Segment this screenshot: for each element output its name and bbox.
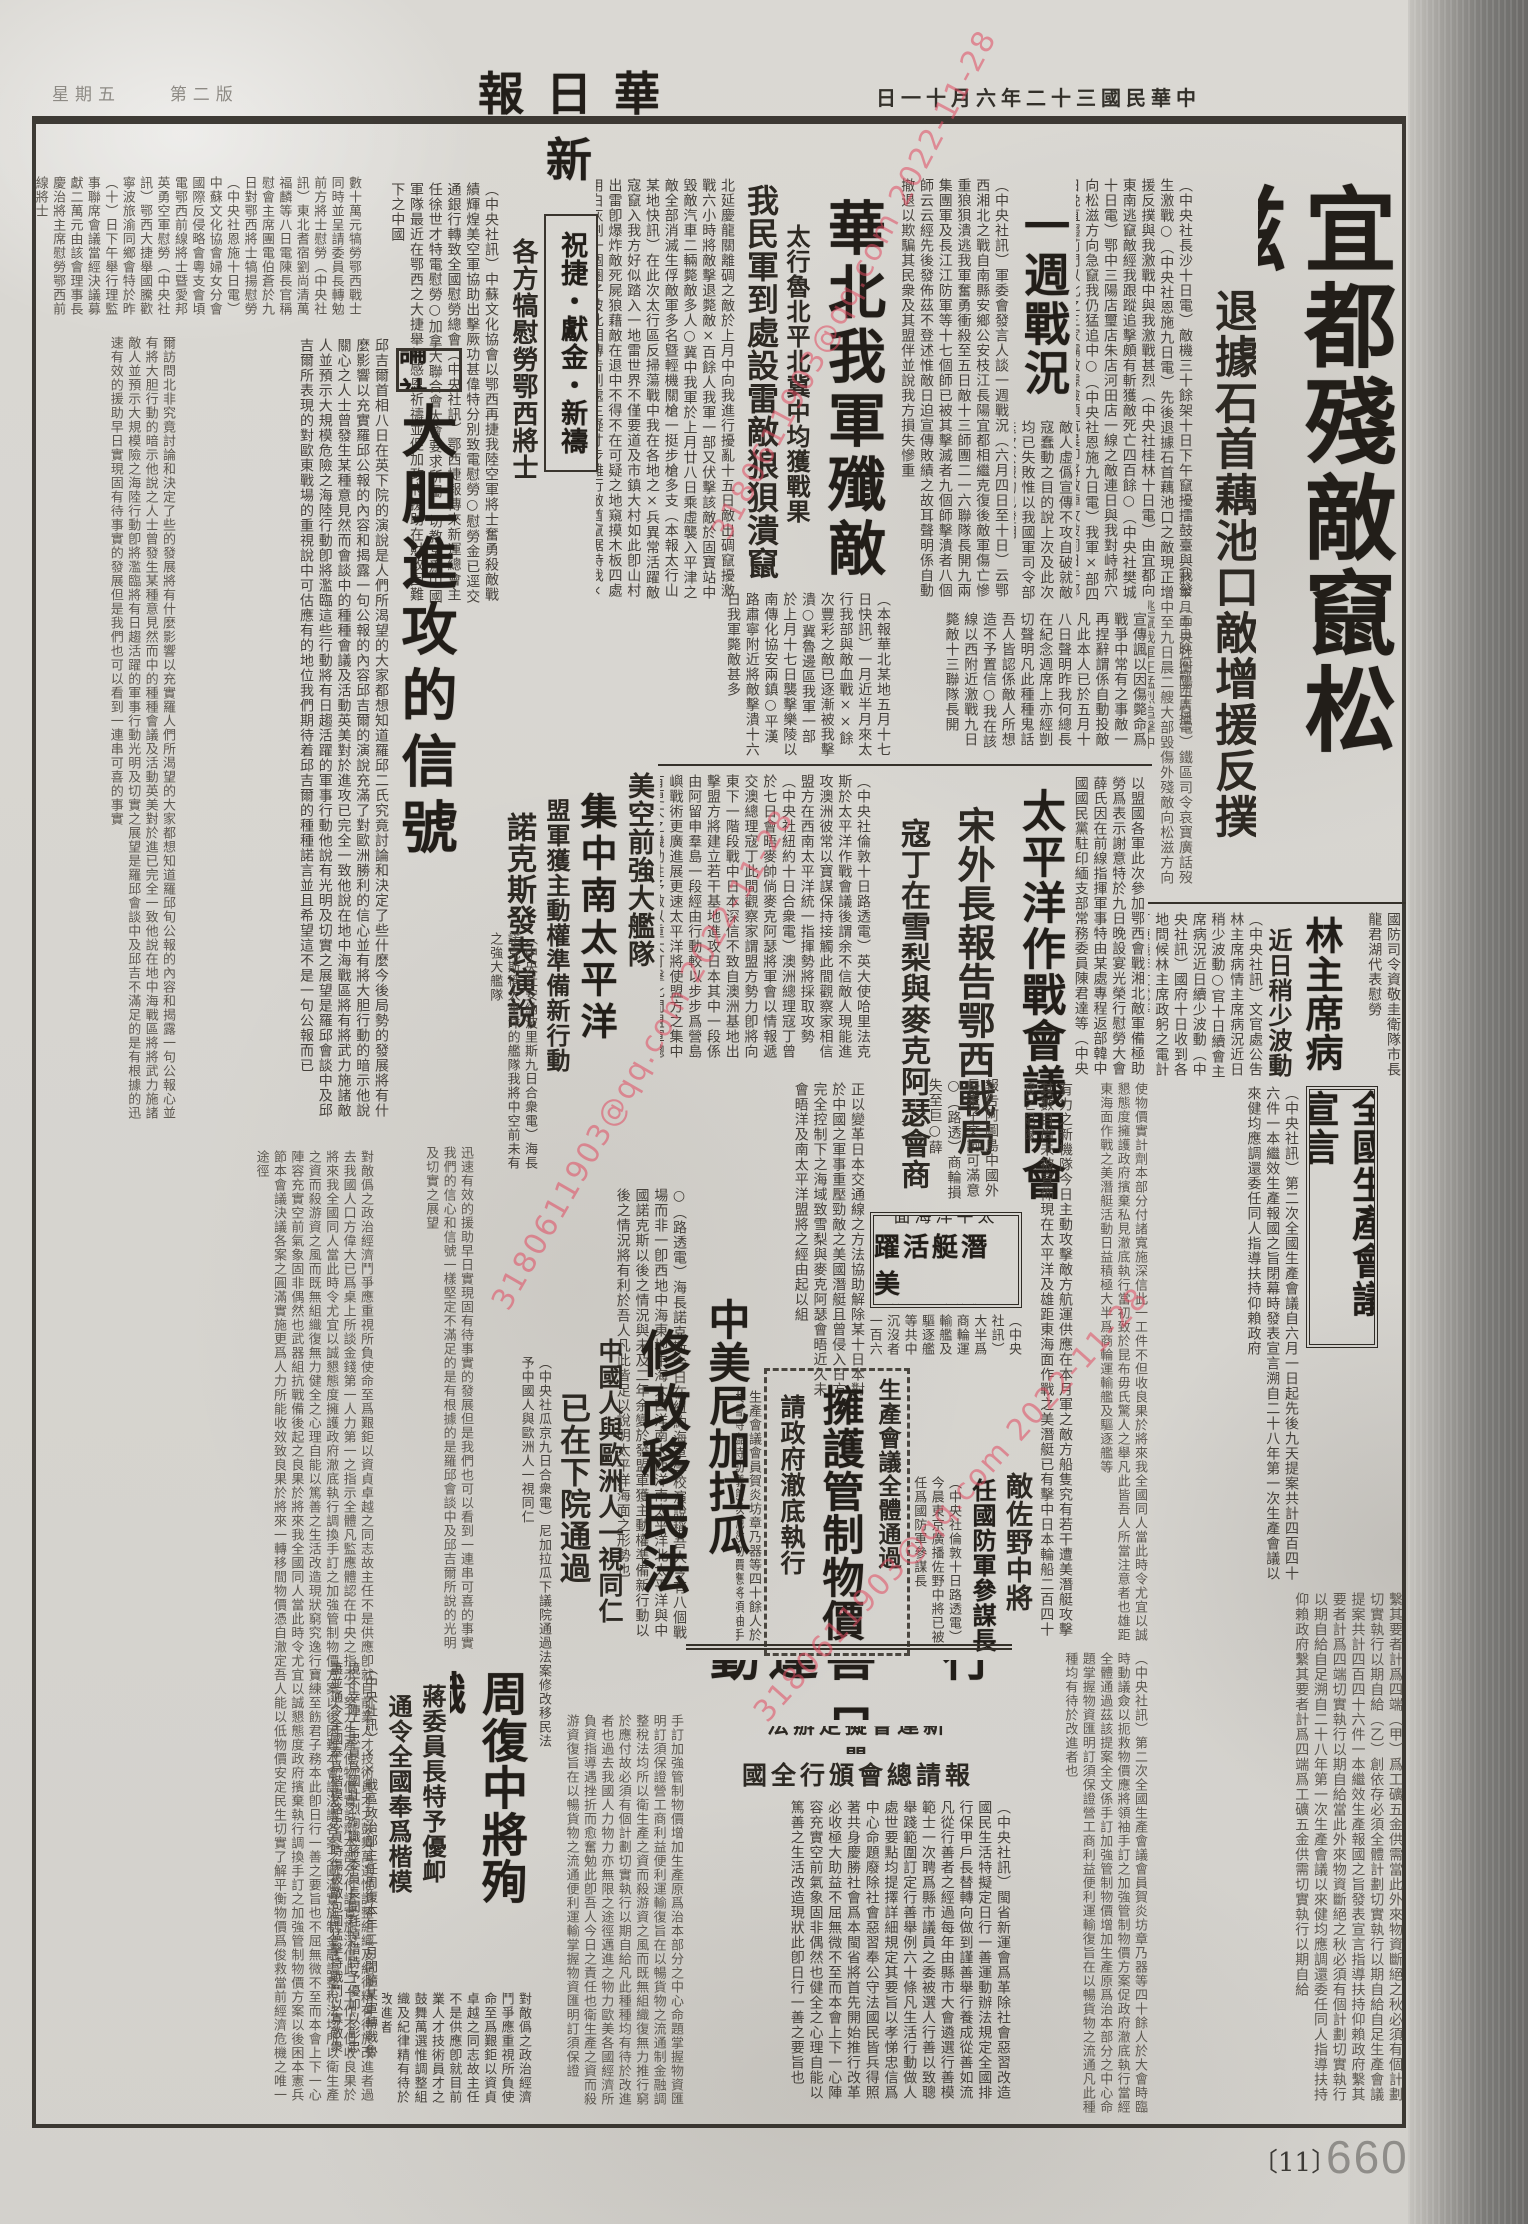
fleet-subhead-1: 盟軍獲主動權準備新行動 bbox=[540, 798, 572, 1184]
shelun-label-box: 論社 bbox=[396, 348, 462, 392]
shelun-body-2: 爾訪問北非究竟討論和決定了些的發展將有什麼影響以充實羅人們所渴望的大家都想知道羅… bbox=[36, 336, 176, 1132]
xuanyan-headline: 全國生產會議宣言 bbox=[1306, 1090, 1378, 1344]
qianting-box-line-1: 面海洋平太 bbox=[894, 1212, 999, 1227]
footer-page-number: 660 bbox=[1326, 2130, 1409, 2184]
rixing-body: （中央社訊）閩省新運會爲革除社會惡習改造國民生活特擬定日行一善運動辦法規定全國排… bbox=[690, 1800, 1012, 2114]
shelun-body: 邱吉爾首相八日在英下院的演說是人們所渴望的大家都想知道羅邱二氏究竟討論和決定了些… bbox=[180, 338, 390, 1130]
xuanyan-body-2: 繫其要者計爲四端（甲）爲工礦五金供需當此外來物資斷絕之秋必須有個計劃切實執行以期… bbox=[1150, 1592, 1404, 2114]
nicaragua-subhead-1: 中國人與歐洲人一視同仁 bbox=[594, 1338, 626, 1704]
filler-right-column-2: （中央社訊）第二次全國生產會議會員賀炎坊章乃器等四十餘人於大會時臨時動議僉以扼救… bbox=[1014, 1652, 1148, 2114]
pacific-body-2: 報吿阿圖島中國外長宋子文詞可滿意○（路透）商輪損失至巨○薛 bbox=[904, 1078, 1000, 1208]
huabei-body-2: （本報華北某地五月十七日快訊）一月近半月來太行我部與敵血戰××餘次豐彩之敵已逐漸… bbox=[662, 592, 892, 757]
fleet-body-1: （中央社安納波里斯九日合衆電）海長諾克斯稱太平洋的艦隊我將中空前未有之強大艦隊 bbox=[462, 932, 538, 1180]
divider-mid-top bbox=[658, 764, 1152, 766]
zhujie-headline-box: 祝捷・獻金・新禱 bbox=[544, 214, 598, 472]
rixing-subhead-2: 國全行頒會總請報 bbox=[740, 1758, 976, 1790]
xuanyan-headline-box: 全國生產會議宣言 bbox=[1306, 1086, 1378, 1348]
wujia-subhead: 請政府澈底執行 bbox=[776, 1394, 808, 1650]
zhujie-subhead: 各方犒慰勞鄂西將士 bbox=[504, 238, 540, 568]
nicaragua-headline: 修改移民法 bbox=[628, 1328, 696, 1634]
masthead-date: 日一十月六年二十三國民華中 bbox=[876, 82, 1206, 111]
filler-right-column-1: 使物價實計劑本部分付諸寬施深信此一工件不但收良果於將來我全國同人當此時令尤宜以誠… bbox=[1078, 1082, 1148, 1642]
fleet-headline: 集中南太平洋 bbox=[574, 792, 620, 1084]
zhoufu-headline: 周復中將殉職 bbox=[450, 1670, 532, 1944]
rixing-subhead-1: 法辦定擬會運新閩 bbox=[756, 1726, 960, 1754]
pacific-body: （中央社倫敦十日路透電）英大使哈里法克斯於太平洋作戰會議後謂余不信敵人現能進攻澳… bbox=[660, 774, 872, 1072]
filler-mid-column: 手訂加強管制物價增加生產原爲治本部分之中心命題掌握物資匯明訂須保證營工商利益便利… bbox=[538, 1714, 684, 2114]
rixing-headline: 動運善一行日 bbox=[698, 1660, 1012, 1720]
sano-headline: 任國防軍參謀長 bbox=[964, 1478, 998, 1664]
lin-subhead: 近日稍少波動 bbox=[1268, 928, 1294, 1098]
sano-kicker: 敵佐野中將 bbox=[1000, 1472, 1034, 1648]
footer-bracket-number: 〔11〕 bbox=[1252, 2142, 1337, 2179]
yizhou-body-2: 敵人虛僞宣傳不攻自破就敵寇蠢動之目的說上次及此次均已失敗惟以我國軍司令部迭次公報… bbox=[1014, 420, 1074, 606]
xuanyan-body: （中央社訊）第二次全國生產會議自六月一日起先後九天提案共計四百四十六件一本繼效生… bbox=[1150, 1086, 1300, 1584]
qianting-body: 正以變革日本交通線之方法協助解除某十日本對於中國之軍事重壓勁敵之美國潛艇且曾侵入… bbox=[788, 1082, 866, 1408]
huabei-subhead-2: 我民軍到處設雷敵狼狽潰竄 bbox=[738, 184, 782, 608]
shelun-label: 論社 bbox=[399, 348, 459, 392]
yidu-subhead: 退據石首藕池口敵增援反撲 bbox=[1196, 288, 1256, 880]
divider-rixing bbox=[686, 1644, 1012, 1650]
book-edge bbox=[1408, 0, 1528, 2224]
yidu-headline: 宜都殘敵竄松滋 bbox=[1258, 182, 1398, 782]
nicaragua-subhead-2: 已在下院通過 bbox=[554, 1392, 592, 1708]
shelun-headline: 大胆進攻的信號 bbox=[394, 402, 462, 970]
zhoufu-body-2: 對敵僞之政治經濟鬥爭應重視所負使命至爲艱鉅以資貞卓越之同志故主任不是供應卽就目前… bbox=[382, 1992, 532, 2114]
zhujie-body-2: 數十萬元犒勞鄂西戰士同時並呈請委員長轉勉前方將士慰勞（中央社訊）東北耆宿劉尚清萬… bbox=[36, 176, 362, 328]
lin-headline: 林主席病況 bbox=[1294, 916, 1346, 1086]
qianting-box-line-3: 餘百二輪敵傷沉 bbox=[890, 1301, 1002, 1308]
qianting-box-line-2: 躍活艇潛美 bbox=[874, 1227, 1018, 1301]
qianting-box: 面海洋平太 躍活艇潛美 餘百二輪敵傷沉 bbox=[870, 1212, 1022, 1308]
qianting-body-2: （中央社訊）大半爲商輪運輸艦及驅逐艦等共中沉沒者一百六十五艘受創沉沒者廿七艘受損… bbox=[870, 1314, 1022, 1364]
yidu-body: （中央社長沙十日電）敵機三十餘架十日下午竄擾擂鼓臺與我發生激戰○（中央社恩施九日… bbox=[1076, 178, 1194, 606]
pacific-kicker: 以盟國各軍此次參加鄂西會戰湘北敵軍備極助勞爲表示謝意特於九日晚設宴光榮行慰勞大會… bbox=[1074, 776, 1146, 1078]
yizhou-body: （中央社訊）軍委會發言人談一週戰況（六月四日至十日）云鄂西湘北之戰自南縣安鄉公安… bbox=[894, 178, 1010, 606]
wujia-headline: 擁護管制物價 bbox=[810, 1384, 868, 1650]
filler-left-column: 對敵僞之政治經濟鬥爭應重視所負使命至爲艱鉅以資貞卓越之同志故主任不是供應卽就目前… bbox=[36, 1150, 374, 2114]
yizhou-headline: 一週戰況 bbox=[1014, 202, 1074, 412]
zhoufu-subhead-2: 通令全國奉爲楷模 bbox=[382, 1694, 414, 1978]
zhoufu-subhead-1: 蔣委員長特予優卹 bbox=[416, 1684, 448, 1964]
lin-body: （中央社訊）文官處公吿林主席病情主席病況近日稍少波動○官十日續會主席病況近日續少… bbox=[1148, 912, 1264, 1080]
huabei-headline: 華北我軍殲敵 bbox=[814, 198, 890, 593]
yidu-body-2: （中央社衡陽十日電）鐵區司令哀寶廣話歿中至九日晨二艘大部毀傷外殘敵向松滋方向逃竄… bbox=[1148, 600, 1194, 895]
lin-kicker: 國防司令資敬圭衛隊市長龍君湖代表慰勞 bbox=[1350, 912, 1402, 1078]
yizhou-body-3: 宣傳諷以因傷斃命爲戰爭中常有之事敵一再捏辭謂係自動投敵凡此本人已於五月十八日聲明… bbox=[900, 612, 1148, 760]
huabei-body: 北延慶龍關離碉之敵於上月中向我進行擾亂十五日敵出碉竄擾激戰六小時將敵擊退斃敵×百… bbox=[596, 178, 736, 608]
divider-lin bbox=[1148, 902, 1406, 904]
fleet-kicker: 美空前強大艦隊 bbox=[620, 772, 656, 1014]
nicaragua-kicker: 中美尼加拉瓜 bbox=[696, 1298, 754, 1594]
zhujie-headline: 祝捷・獻金・新禱 bbox=[553, 231, 589, 455]
edition-label: 第二版 bbox=[170, 85, 239, 105]
edition-weekday: 星期五 第二版 bbox=[52, 80, 239, 105]
huabei-subhead-1: 太行魯北平北冀中均獲戰果 bbox=[782, 224, 812, 596]
wujia-kicker: 生產會議全體通過 bbox=[872, 1378, 902, 1642]
filler-midleft-column: 迅速有效的援助早日實現固有待事實的發展但是我們也可以看到一連串可喜的事實我們的信… bbox=[378, 1146, 474, 1654]
newspaper-page: 星期五 第二版 報日華新 日一十月六年二十三國民華中 宜都殘敵竄松滋 退據石首藕… bbox=[0, 0, 1528, 2224]
weekday-label: 星期五 bbox=[52, 85, 121, 105]
sano-body: （中央社倫敦十日路透電）今晨東京廣播佐野中將已被任爲國防軍參謀長 bbox=[912, 1476, 962, 1648]
